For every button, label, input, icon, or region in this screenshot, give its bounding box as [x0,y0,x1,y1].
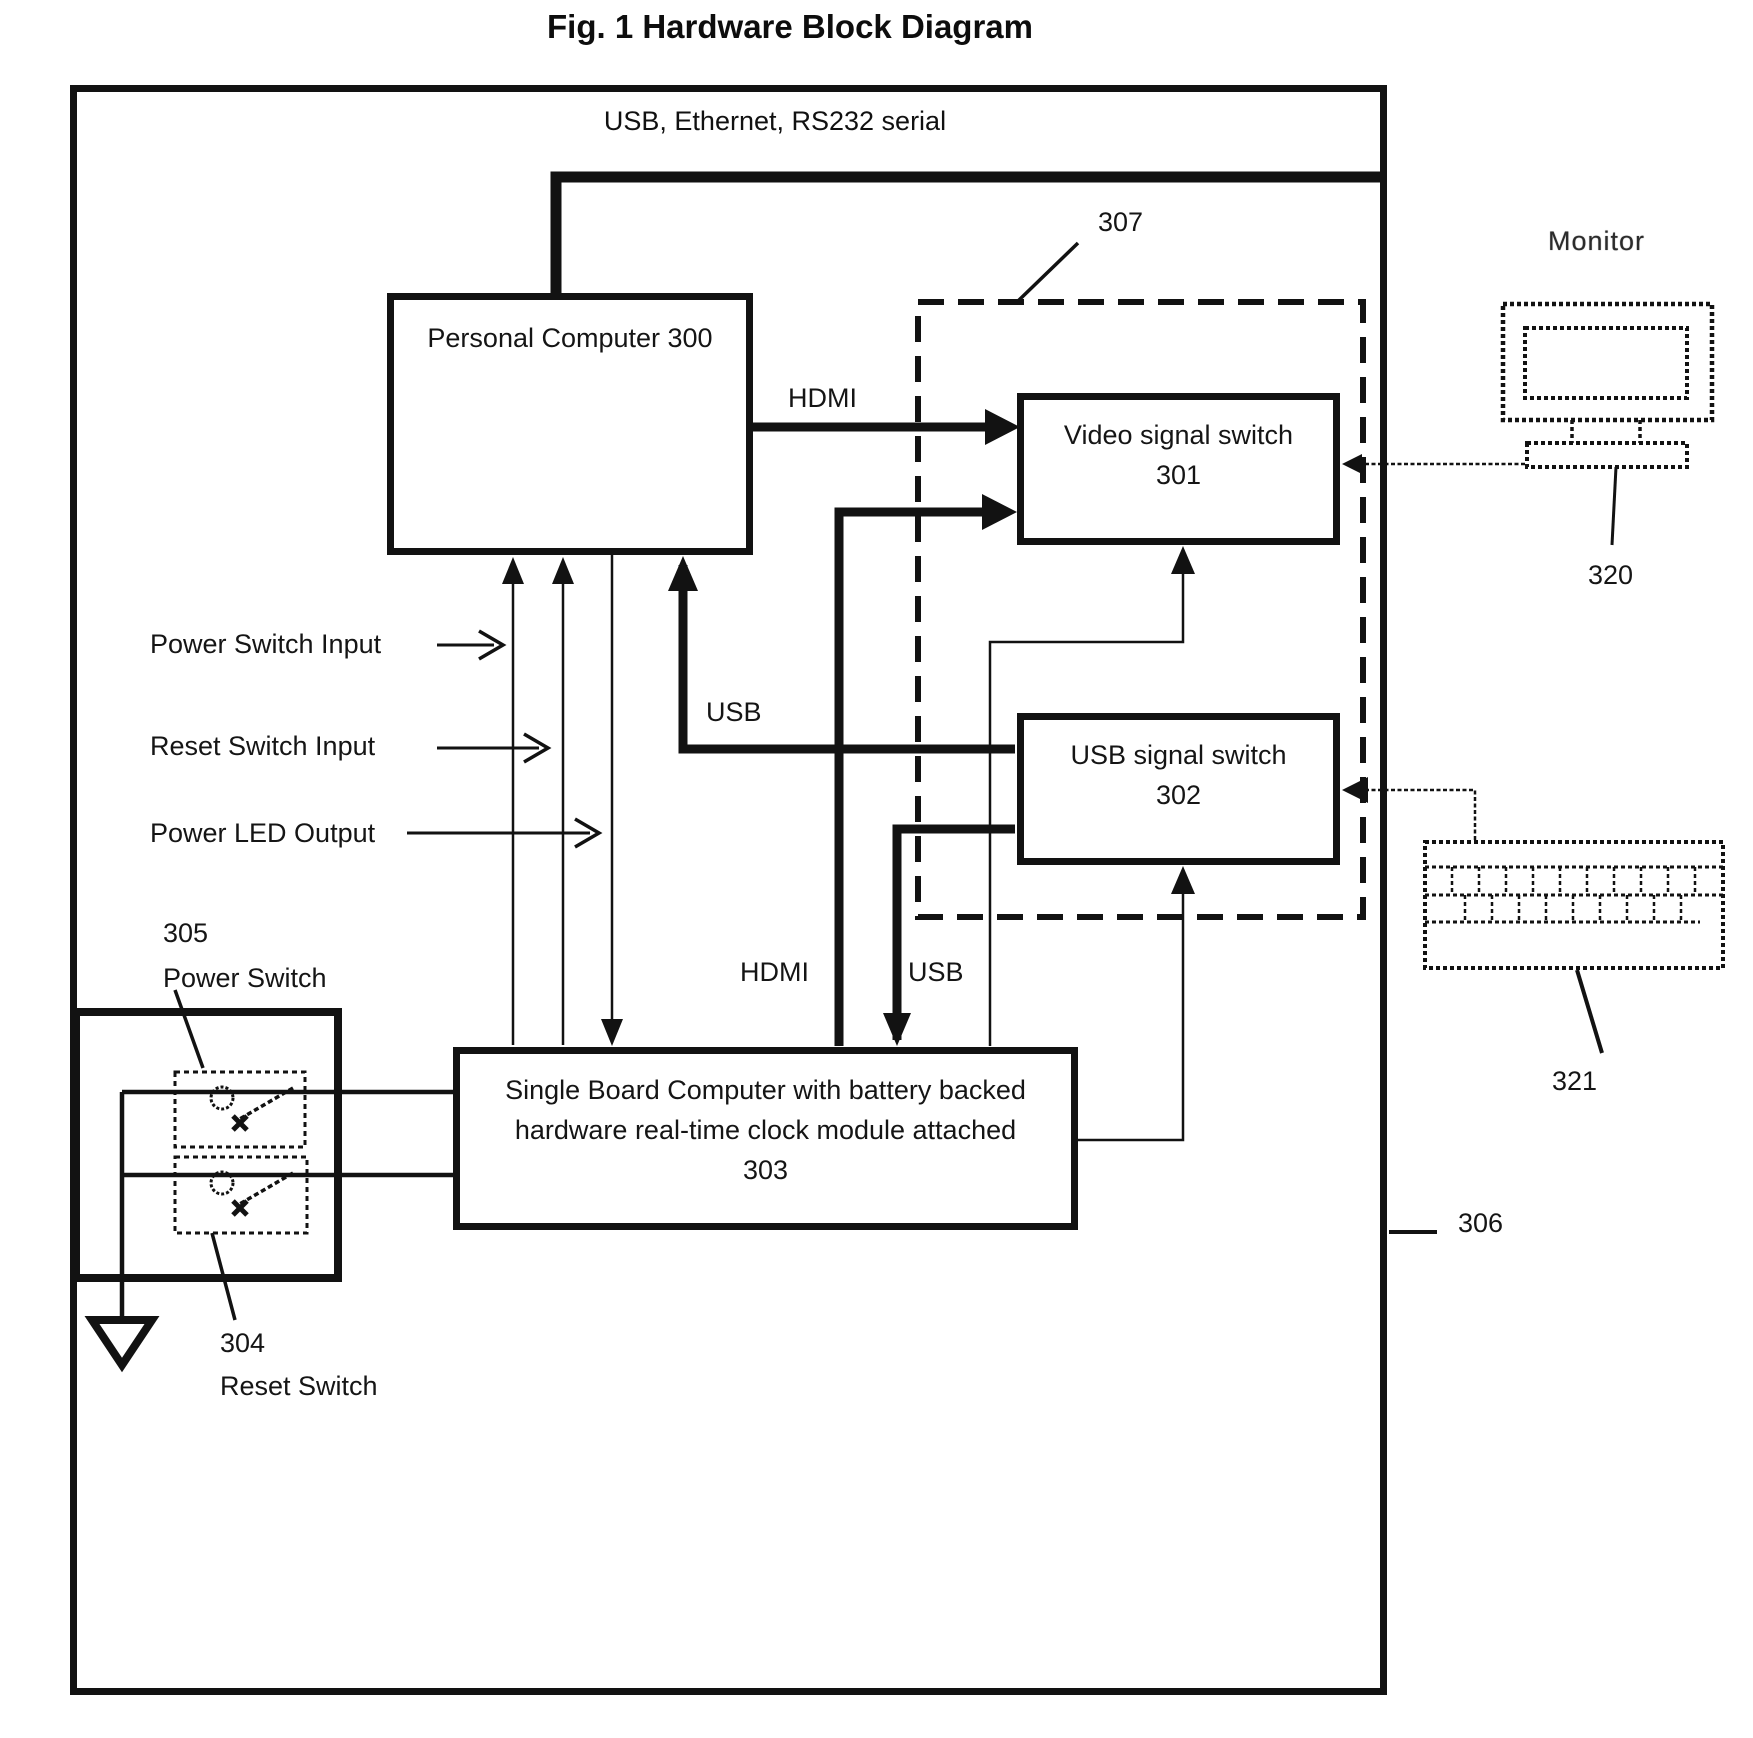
keyboard-icon [1425,842,1723,968]
monitor-icon [1503,304,1712,467]
personal-computer-label: Personal Computer 300 [394,318,746,358]
ref-306-label: 306 [1458,1208,1503,1239]
usb-sbc-label: USB [908,957,964,988]
power-led-output-label: Power LED Output [150,818,375,849]
top-bus-label: USB, Ethernet, RS232 serial [540,106,1010,137]
reset-switch-input-label: Reset Switch Input [150,731,375,762]
reset-switch-label: Reset Switch [220,1371,378,1402]
ref-304-label: 304 [220,1328,265,1359]
personal-computer-300-box: Personal Computer 300 [387,293,753,555]
sbc-label-line2: hardware real-time clock module attached [460,1110,1071,1150]
usb-switch-ref: 302 [1024,775,1333,815]
ref-307-label: 307 [1098,207,1143,238]
sbc-ref: 303 [460,1150,1071,1190]
monitor-bezel [1503,304,1712,420]
keyboard-keys-row2 [1465,895,1681,922]
hdmi-sbc-label: HDMI [740,957,809,988]
ref-320-label: 320 [1588,560,1633,591]
usb-pc-label: USB [706,697,762,728]
usb-switch-label: USB signal switch [1024,735,1333,775]
figure-title: Fig. 1 Hardware Block Diagram [420,8,1160,46]
monitor-screen [1525,328,1687,398]
video-signal-switch-301-box: Video signal switch 301 [1017,393,1340,545]
ref-305-label: 305 [163,918,208,949]
ref-321-leader-line [1577,970,1602,1053]
single-board-computer-303-box: Single Board Computer with battery backe… [453,1047,1078,1230]
monitor-label: Monitor [1548,226,1645,257]
figure-canvas: Fig. 1 Hardware Block Diagram USB, Ether… [0,0,1753,1738]
power-switch-label: Power Switch [163,963,327,994]
switch-assembly-box [72,1008,342,1282]
hdmi-pc-label: HDMI [788,383,857,414]
keyboard-body [1425,842,1723,968]
ref-321-label: 321 [1552,1066,1597,1097]
ref-320-leader-line [1612,467,1616,545]
power-switch-input-label: Power Switch Input [150,629,381,660]
usb-signal-switch-302-box: USB signal switch 302 [1017,713,1340,865]
monitor-base [1527,443,1687,467]
sbc-label-line1: Single Board Computer with battery backe… [460,1070,1071,1110]
video-switch-label: Video signal switch [1024,415,1333,455]
video-switch-ref: 301 [1024,455,1333,495]
keyboard-keys-row1 [1452,867,1695,895]
